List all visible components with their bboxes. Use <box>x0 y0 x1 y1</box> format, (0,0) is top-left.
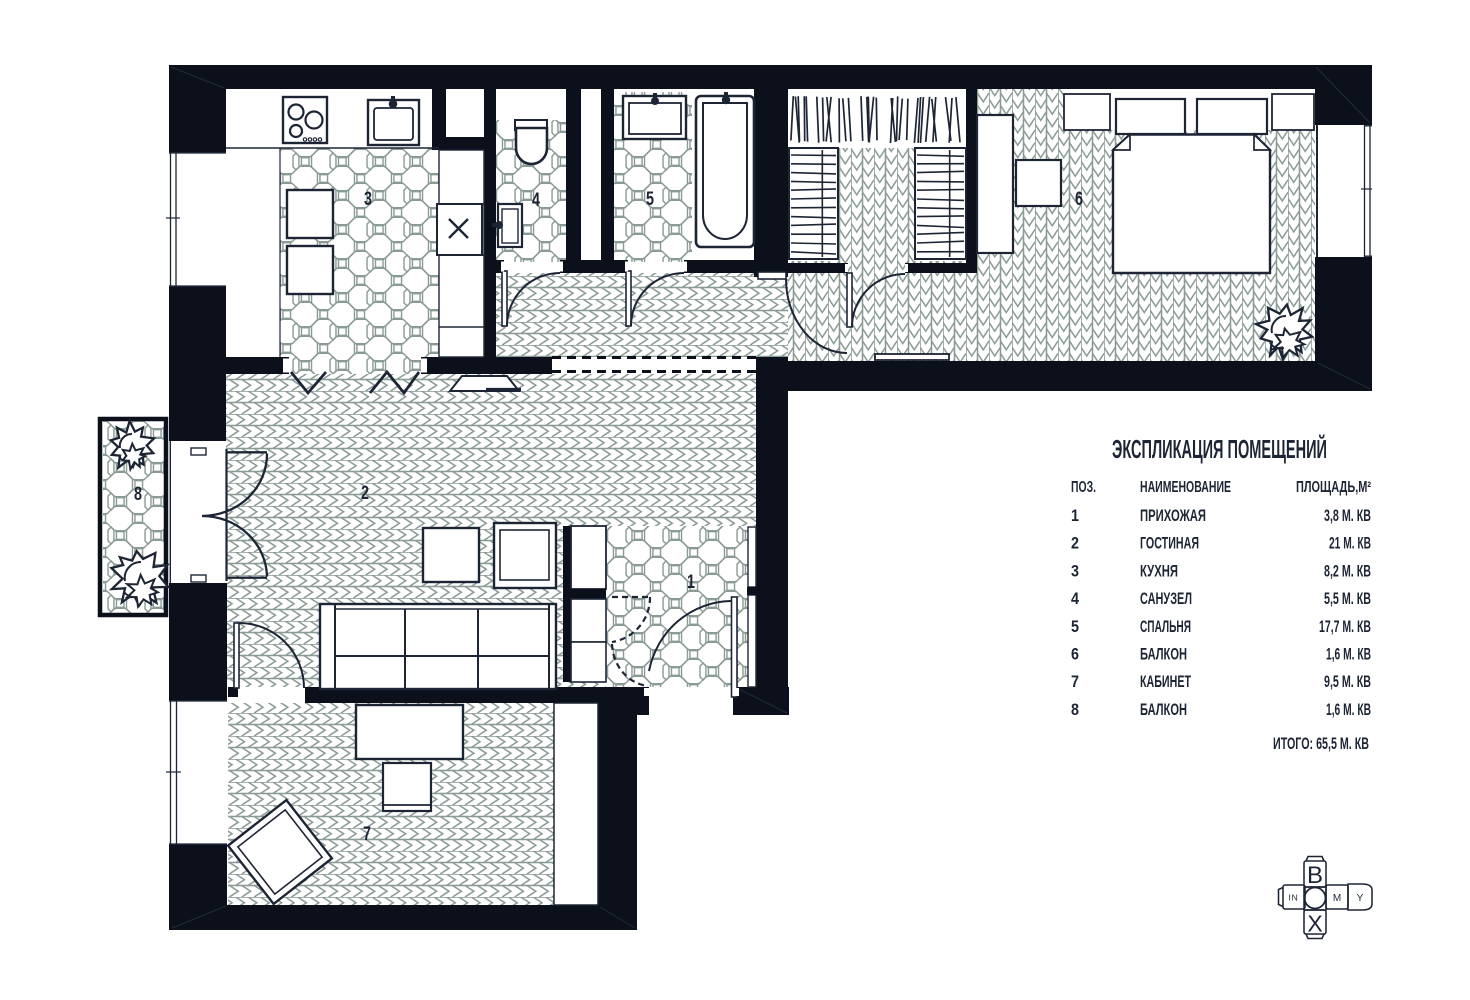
svg-text:ИТОГО: 65,5 М. КВ: ИТОГО: 65,5 М. КВ <box>1273 734 1369 753</box>
svg-text:1: 1 <box>687 572 695 593</box>
svg-text:3: 3 <box>1071 561 1079 580</box>
svg-text:4: 4 <box>532 190 540 211</box>
svg-text:БАЛКОН: БАЛКОН <box>1140 700 1187 719</box>
svg-text:M: M <box>1333 893 1341 904</box>
svg-text:ГОСТИНАЯ: ГОСТИНАЯ <box>1140 534 1199 553</box>
svg-text:ЭКСПЛИКАЦИЯ ПОМЕЩЕНИЙ: ЭКСПЛИКАЦИЯ ПОМЕЩЕНИЙ <box>1112 434 1327 464</box>
svg-text:БАЛКОН: БАЛКОН <box>1140 645 1187 664</box>
svg-text:4: 4 <box>1071 589 1079 608</box>
svg-text:1: 1 <box>1071 506 1079 525</box>
svg-text:IN: IN <box>1288 893 1298 903</box>
svg-text:8: 8 <box>134 484 142 505</box>
svg-text:1,6 М. КВ: 1,6 М. КВ <box>1326 700 1371 719</box>
svg-text:2: 2 <box>361 483 369 504</box>
svg-text:3,8 М. КВ: 3,8 М. КВ <box>1324 506 1371 525</box>
svg-text:ПЛОЩАДЬ,М²: ПЛОЩАДЬ,М² <box>1296 479 1371 496</box>
svg-text:ПРИХОЖАЯ: ПРИХОЖАЯ <box>1140 506 1206 525</box>
svg-text:5,5 М. КВ: 5,5 М. КВ <box>1324 589 1371 608</box>
svg-text:B: B <box>1307 862 1323 889</box>
svg-text:6: 6 <box>1071 645 1079 664</box>
svg-text:САНУЗЕЛ: САНУЗЕЛ <box>1140 589 1192 608</box>
svg-text:5: 5 <box>646 189 654 210</box>
svg-text:8: 8 <box>1071 700 1079 719</box>
svg-text:21 М. КВ: 21 М. КВ <box>1329 534 1371 553</box>
svg-text:3: 3 <box>364 189 372 210</box>
svg-text:8,2 М. КВ: 8,2 М. КВ <box>1324 561 1371 580</box>
svg-text:X: X <box>1307 911 1322 937</box>
svg-text:17,7 М. КВ: 17,7 М. КВ <box>1319 617 1371 636</box>
svg-text:КАБИНЕТ: КАБИНЕТ <box>1140 672 1191 691</box>
svg-text:6: 6 <box>1075 189 1083 210</box>
svg-text:СПАЛЬНЯ: СПАЛЬНЯ <box>1140 617 1191 636</box>
svg-text:5: 5 <box>1071 617 1079 636</box>
svg-text:7: 7 <box>363 824 371 845</box>
svg-text:2: 2 <box>1071 534 1079 553</box>
svg-text:7: 7 <box>1071 672 1079 691</box>
svg-text:КУХНЯ: КУХНЯ <box>1140 561 1178 580</box>
svg-text:ПОЗ.: ПОЗ. <box>1071 479 1096 496</box>
svg-text:НАИМЕНОВАНИЕ: НАИМЕНОВАНИЕ <box>1140 479 1231 496</box>
svg-text:9,5 М. КВ: 9,5 М. КВ <box>1324 672 1371 691</box>
svg-text:1,6 М. КВ: 1,6 М. КВ <box>1326 645 1371 664</box>
svg-text:Y: Y <box>1357 893 1364 904</box>
